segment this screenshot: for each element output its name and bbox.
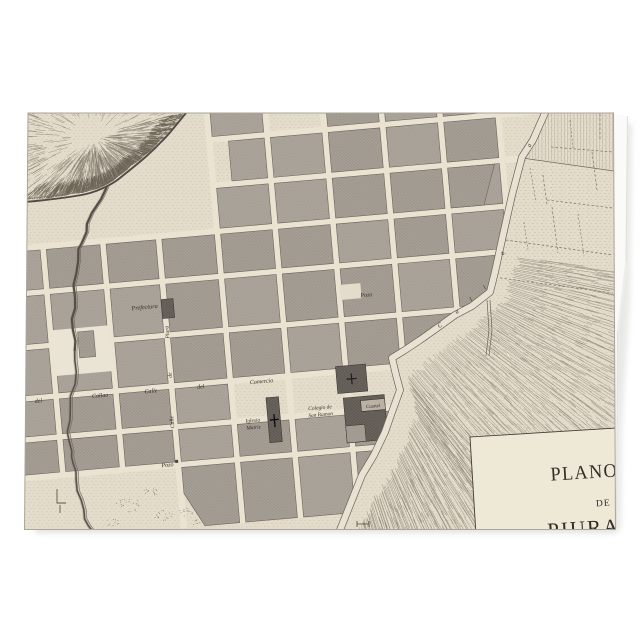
svg-text:Pozo: Pozo <box>359 292 372 299</box>
svg-text:Calle: Calle <box>169 415 176 428</box>
svg-text:del: del <box>35 398 43 405</box>
svg-text:PLANO: PLANO <box>550 460 619 486</box>
svg-text:Pozo: Pozo <box>160 462 173 469</box>
svg-text:Calle: Calle <box>144 388 158 395</box>
svg-text:Piura: Piura <box>164 325 171 339</box>
svg-text:del: del <box>197 384 205 391</box>
svg-text:DE: DE <box>596 499 611 510</box>
